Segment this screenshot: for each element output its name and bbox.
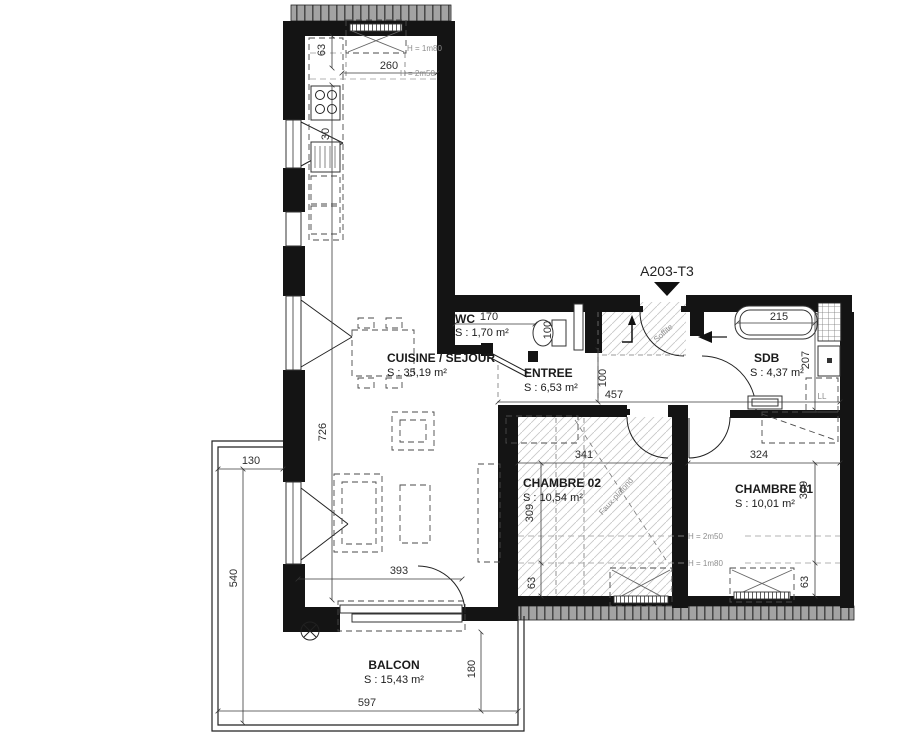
wall-top-main-left: [455, 295, 640, 312]
chair: [358, 378, 374, 388]
dim-wc-170: 170: [480, 311, 498, 323]
wall-sdb-west: [690, 312, 704, 336]
balcon-name: BALCON: [368, 658, 419, 672]
entrance-door-stop: [681, 306, 687, 312]
wc-name: WC: [455, 312, 475, 326]
sejour-window: [286, 296, 301, 370]
wall-left-2: [283, 168, 305, 212]
label-washing-machine: LL: [818, 392, 827, 401]
dim-sejour-726: 726: [317, 423, 329, 441]
dim-c02-309: 309: [524, 504, 536, 522]
dim-c01-324: 324: [750, 449, 768, 461]
dim-c01-309: 309: [798, 481, 810, 499]
cuisine-name: CUISINE / SEJOUR: [387, 351, 495, 365]
wall-chambre-separator: [672, 405, 688, 608]
wc-door-leaf: [574, 304, 583, 350]
balcon-area: S : 15,43 m²: [364, 674, 424, 686]
kitchen-island-inner: [400, 420, 426, 442]
sdb-name: SDB: [754, 351, 780, 365]
velux-kitchen: [346, 20, 406, 53]
sejour-window-swing: [301, 300, 352, 367]
chambre01-door-swing: [689, 417, 730, 458]
duct-shaft: [818, 303, 841, 341]
dim-tub-215: 215: [770, 311, 788, 323]
chair: [386, 318, 402, 328]
balcony-rail-outer: [212, 441, 524, 731]
label-h2m50-top: H = 2m50: [400, 69, 435, 78]
wall-left-3: [283, 246, 305, 296]
unit-label: A203-T3: [640, 263, 694, 279]
sejour-small-window: [286, 212, 301, 246]
kitchen-appliance-1: [311, 176, 340, 204]
sdb-area: S : 4,37 m²: [750, 367, 804, 379]
velux-chambre01: [730, 568, 794, 602]
wall-post-entree: [528, 351, 538, 362]
floor-plan: A203-T3 CUISINE / SEJOUR S : 35,19 m² WC…: [0, 0, 918, 748]
dim-hall-457: 457: [605, 389, 623, 401]
label-h1m80-rooms: H = 1m80: [688, 559, 723, 568]
dim-wc-100: 100: [542, 321, 554, 339]
dim-balcon-540: 540: [228, 569, 240, 587]
dim-c02-63: 63: [526, 577, 538, 589]
wall-left-1: [283, 21, 305, 120]
balcony-side-window: [286, 482, 301, 564]
cooktop: [311, 86, 340, 120]
dim-top-260: 260: [380, 60, 398, 72]
chair: [358, 318, 374, 328]
sideboard: [478, 464, 500, 562]
balcony: [212, 441, 524, 731]
dim-c02-341: 341: [575, 449, 593, 461]
kitchen-appliance-2: [311, 206, 340, 234]
balcony-side-window-swing: [301, 488, 348, 560]
dim-hall-100: 100: [597, 369, 609, 387]
chair: [386, 378, 402, 388]
kitchen-window: [286, 120, 301, 168]
wall-sejour-south-left: [283, 607, 340, 632]
wall-chambre01-north: [730, 410, 840, 418]
dim-balcon-180: 180: [466, 660, 478, 678]
chambre02-name: CHAMBRE 02: [523, 476, 601, 490]
chambre02-door-hinge: [624, 409, 630, 415]
wall-wc-east: [585, 303, 602, 353]
wall-kitchen-right: [437, 21, 455, 352]
dim-kitchen-30: 30: [320, 128, 332, 140]
unit-title: A203-T3: [640, 263, 694, 296]
dim-top-63: 63: [316, 44, 328, 56]
entrance-door-hinge: [637, 306, 643, 312]
wall-sejour-south-right: [462, 607, 518, 621]
dim-sdb-207: 207: [800, 351, 812, 369]
bottom-roof-band: [518, 606, 854, 620]
washbasin-bowl: [752, 399, 778, 406]
entree-area: S : 6,53 m²: [524, 382, 578, 394]
entrance-marker-icon: [654, 282, 680, 296]
coffee-table: [400, 485, 430, 543]
dim-door-393: 393: [390, 565, 408, 577]
entree-name: ENTREE: [524, 366, 573, 380]
chambre01-area: S : 10,01 m²: [735, 498, 795, 510]
dim-balcon-597: 597: [358, 697, 376, 709]
chambre02-area: S : 10,54 m²: [523, 492, 583, 504]
cuisine-area: S : 35,19 m²: [387, 367, 447, 379]
wc-area: S : 1,70 m²: [455, 327, 509, 339]
floor-plan-canvas: A203-T3 CUISINE / SEJOUR S : 35,19 m² WC…: [0, 0, 918, 748]
wall-right: [840, 312, 854, 608]
top-roof-band: [291, 5, 451, 21]
wall-left-4: [283, 370, 305, 482]
wall-sejour-chambre02: [498, 410, 518, 608]
label-h2m50-rooms: H = 2m50: [688, 532, 723, 541]
sofa: [334, 474, 382, 552]
sofa-seat: [342, 482, 376, 544]
kitchen-island: [392, 412, 434, 450]
dim-c01-63: 63: [799, 576, 811, 588]
dim-balcon-130: 130: [242, 455, 260, 467]
sdb-niche-valve: [827, 358, 832, 363]
wall-chambres-south: [518, 596, 854, 606]
label-h1m80-top: H = 1m80: [407, 44, 442, 53]
